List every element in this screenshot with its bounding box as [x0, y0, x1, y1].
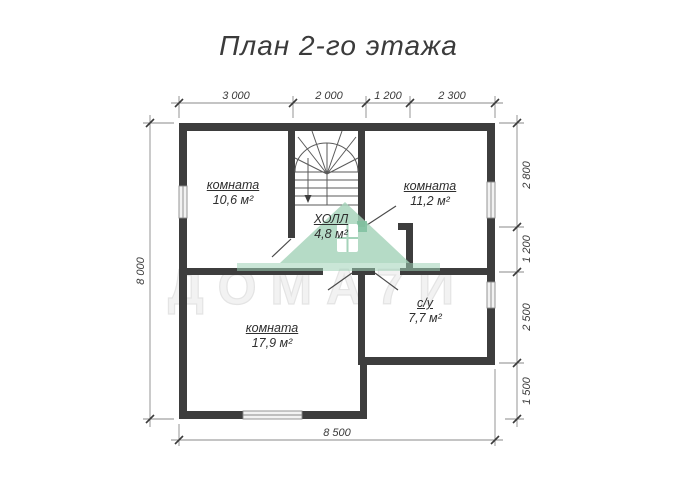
dim-top-1: 3 000 [222, 90, 250, 102]
dim-bottom: 8 500 [323, 427, 351, 439]
dim-top-4: 2 300 [437, 90, 466, 102]
room-label-room4: комната 17,9 м² [246, 321, 298, 351]
down-arrow-icon [305, 195, 312, 203]
wall-stairwell-left [288, 131, 295, 238]
room4-name: комната [246, 321, 298, 336]
room-label-hall: ХОЛЛ 4,8 м² [314, 212, 348, 242]
dim-right-4: 1 500 [521, 376, 533, 404]
bathroom-area: 7,7 м² [408, 311, 442, 326]
wall-bottom-right-section [360, 357, 495, 365]
wall-right [487, 123, 495, 365]
door-room1 [272, 239, 291, 257]
dim-top-3: 1 200 [374, 90, 402, 102]
bathroom-name: с/у [408, 296, 442, 311]
wall-top [179, 123, 495, 131]
wall-left [179, 123, 187, 419]
door-room2 [367, 206, 396, 225]
wall-stairwell-right [358, 131, 365, 227]
room-label-room2: комната 11,2 м² [404, 179, 456, 209]
dim-right-3: 2 500 [521, 302, 533, 331]
room4-area: 17,9 м² [246, 336, 298, 351]
dim-right-2: 1 200 [521, 234, 533, 262]
door-bathroom [375, 273, 398, 290]
room-label-room1: комната 10,6 м² [207, 178, 259, 208]
dim-top-2: 2 000 [314, 90, 343, 102]
door-room4 [328, 273, 352, 290]
dim-right-1: 2 800 [521, 160, 533, 189]
floor-plan-page: План 2-го этажа ДОМА7И [0, 0, 677, 477]
wall-room-bath-divider [358, 268, 365, 365]
room2-area: 11,2 м² [404, 194, 456, 209]
room-label-bathroom: с/у 7,7 м² [408, 296, 442, 326]
logo-base-bar [237, 263, 440, 271]
staircase [295, 131, 358, 205]
dim-left: 8 000 [135, 256, 147, 284]
room1-name: комната [207, 178, 259, 193]
room1-area: 10,6 м² [207, 193, 259, 208]
chimney-icon [357, 221, 367, 232]
hall-area: 4,8 м² [314, 227, 348, 242]
room2-name: комната [404, 179, 456, 194]
hall-name: ХОЛЛ [314, 212, 348, 227]
wall-notch-vertical [360, 365, 367, 419]
